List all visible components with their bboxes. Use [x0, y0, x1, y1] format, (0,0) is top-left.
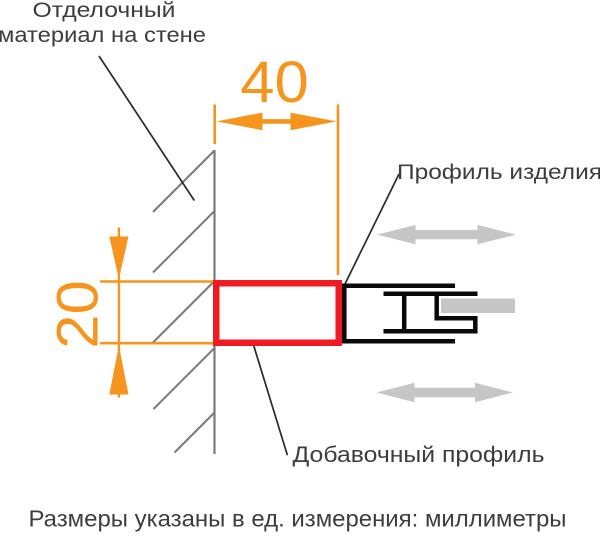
svg-text:20: 20: [46, 280, 111, 349]
svg-text:Профиль изделия: Профиль изделия: [397, 160, 600, 184]
svg-text:Отделочный: Отделочный: [33, 0, 176, 22]
svg-text:40: 40: [240, 50, 309, 115]
svg-text:материал на стене: материал на стене: [0, 23, 206, 47]
svg-text:Добавочный профиль: Добавочный профиль: [293, 442, 545, 467]
svg-text:Размеры указаны в ед. измерени: Размеры указаны в ед. измерения: миллиме…: [29, 505, 567, 531]
